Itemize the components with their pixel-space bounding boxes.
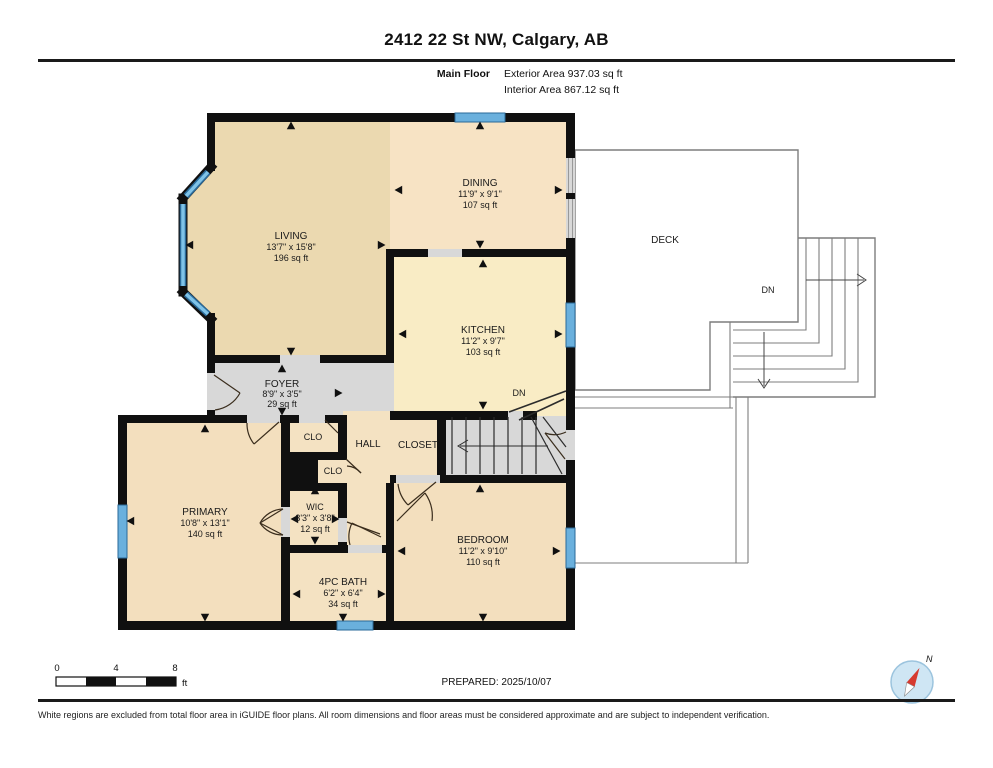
svg-text:11'9" x 9'1": 11'9" x 9'1" bbox=[458, 189, 502, 199]
wic-label: WIC bbox=[306, 502, 324, 512]
svg-text:6'2" x 6'4": 6'2" x 6'4" bbox=[323, 588, 362, 598]
footer-divider bbox=[38, 699, 955, 702]
svg-text:11'2" x 9'10": 11'2" x 9'10" bbox=[459, 546, 508, 556]
svg-text:8'9" x 3'5": 8'9" x 3'5" bbox=[262, 389, 301, 399]
bedroom-label: BEDROOM bbox=[457, 535, 509, 546]
svg-text:140 sq ft: 140 sq ft bbox=[188, 529, 223, 539]
bath-window bbox=[337, 621, 373, 630]
svg-text:110 sq ft: 110 sq ft bbox=[466, 557, 500, 567]
floor-plan-page: 2412 22 St NW, Calgary, AB Main Floor Ex… bbox=[0, 0, 993, 768]
svg-text:3'3" x 3'8": 3'3" x 3'8" bbox=[295, 513, 334, 523]
svg-text:4: 4 bbox=[113, 663, 118, 674]
svg-text:107 sq ft: 107 sq ft bbox=[463, 200, 498, 210]
svg-text:12 sq ft: 12 sq ft bbox=[300, 524, 330, 534]
floor-plan-svg: LIVING 13'7" x 15'8" 196 sq ft DINING 11… bbox=[0, 0, 993, 768]
deck-structure bbox=[575, 150, 875, 563]
stairs-dn-label: DN bbox=[513, 388, 526, 398]
svg-text:34 sq ft: 34 sq ft bbox=[328, 599, 358, 609]
svg-text:13'7" x 15'8": 13'7" x 15'8" bbox=[266, 242, 315, 252]
svg-text:196 sq ft: 196 sq ft bbox=[274, 253, 309, 263]
deck-dn-label: DN bbox=[762, 285, 775, 295]
bedroom-window bbox=[566, 528, 575, 568]
dining-window bbox=[455, 113, 505, 122]
clo2-label: CLO bbox=[324, 466, 343, 476]
bath-label: 4PC BATH bbox=[319, 577, 367, 588]
kitchen-window bbox=[566, 303, 575, 347]
primary-label: PRIMARY bbox=[182, 507, 228, 518]
svg-text:11'2" x 9'7": 11'2" x 9'7" bbox=[461, 336, 505, 346]
svg-text:29 sq ft: 29 sq ft bbox=[267, 399, 297, 409]
lower-patio bbox=[575, 397, 748, 563]
living-label: LIVING bbox=[275, 231, 308, 242]
svg-text:8: 8 bbox=[172, 663, 177, 674]
primary-window bbox=[118, 505, 127, 558]
north-label: N bbox=[926, 654, 933, 664]
svg-text:0: 0 bbox=[54, 663, 59, 674]
svg-text:10'8" x 13'1": 10'8" x 13'1" bbox=[180, 518, 229, 528]
svg-text:103 sq ft: 103 sq ft bbox=[466, 347, 501, 357]
dining-label: DINING bbox=[463, 178, 498, 189]
deck-outline bbox=[575, 150, 798, 390]
closet-label: CLOSET bbox=[398, 440, 438, 451]
kitchen-label: KITCHEN bbox=[461, 325, 505, 336]
hall-label: HALL bbox=[355, 439, 380, 450]
prepared-date: PREPARED: 2025/10/07 bbox=[0, 677, 993, 688]
disclaimer-text: White regions are excluded from total fl… bbox=[38, 710, 955, 720]
deck-label: DECK bbox=[651, 235, 679, 246]
clo1-label: CLO bbox=[304, 432, 323, 442]
